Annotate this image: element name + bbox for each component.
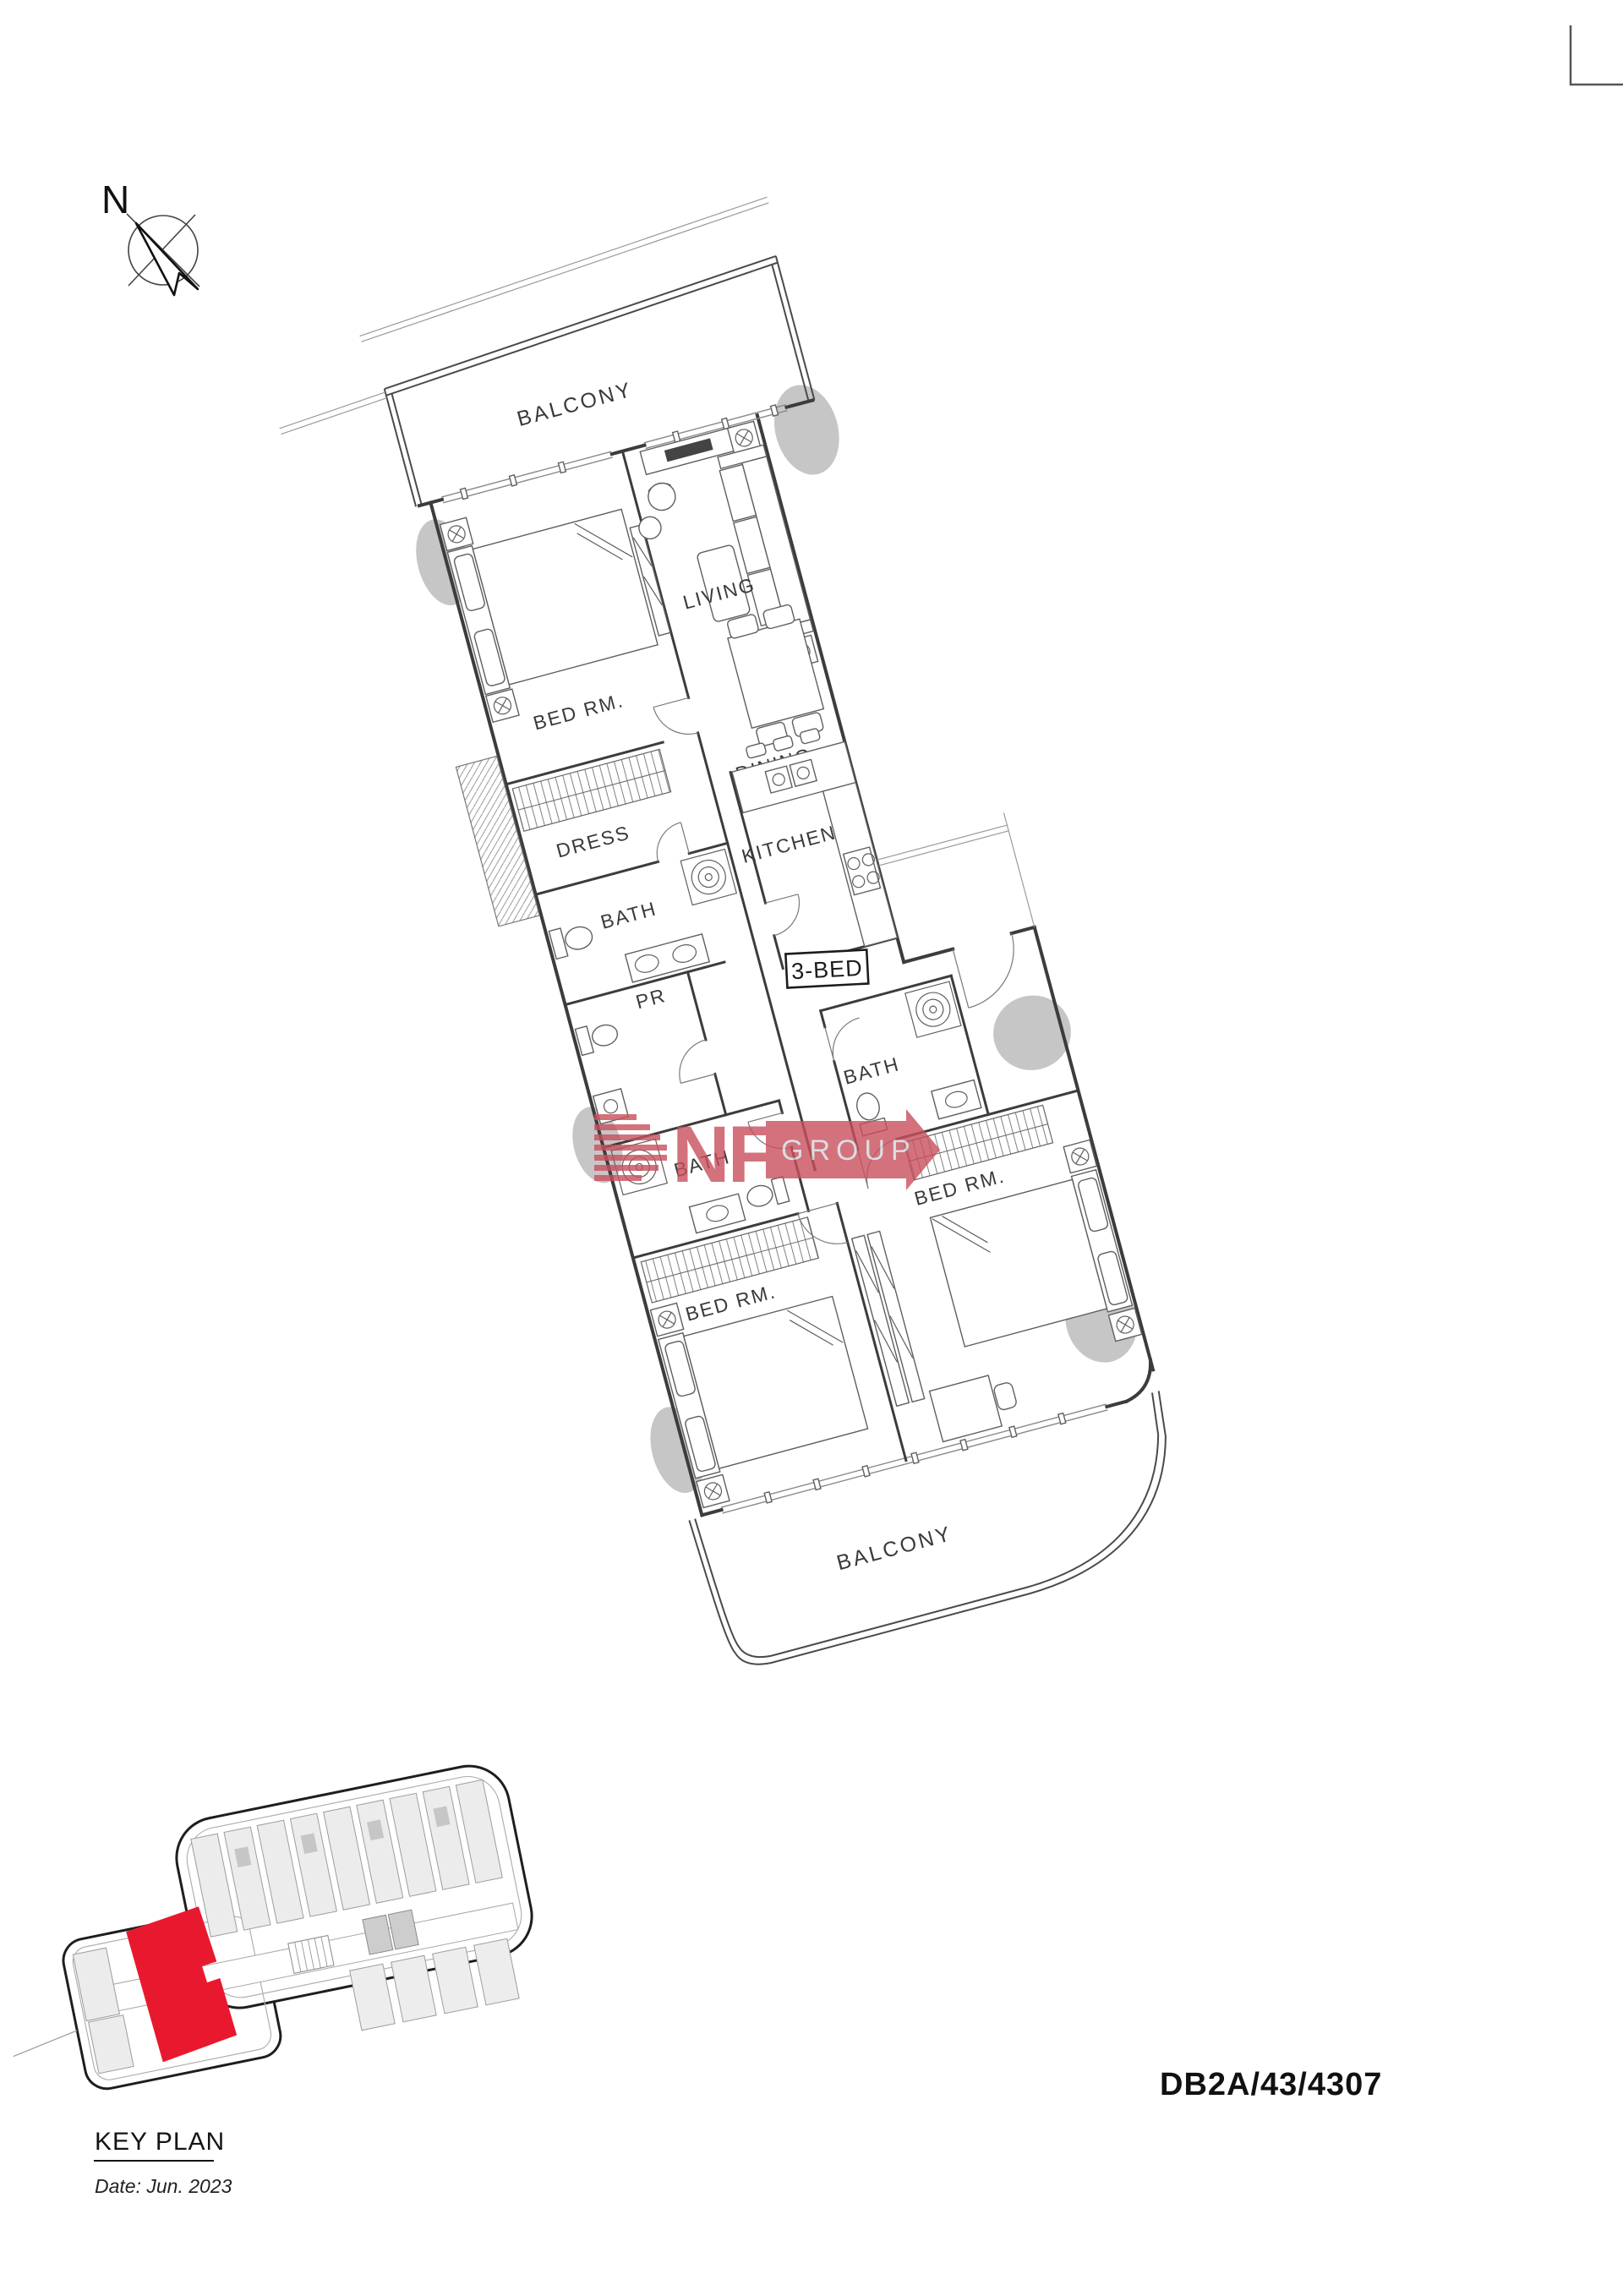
key-plan-title: KEY PLAN xyxy=(95,2128,225,2156)
blueprint-canvas: N BALCONY xyxy=(0,0,1623,2296)
room-label-bath-master: BATH xyxy=(598,897,659,933)
powder-room: PR xyxy=(570,984,694,1124)
bed-master: BED RM. xyxy=(440,474,687,744)
unit-type-tag: 3-BED xyxy=(785,950,868,988)
logo-banner-text: GROUP xyxy=(781,1134,916,1167)
key-plan-map xyxy=(0,1759,549,2107)
unit-type-label: 3-BED xyxy=(790,955,863,984)
room-label-bed-master: BED RM. xyxy=(531,689,626,735)
kitchen: KITCHEN xyxy=(715,722,898,970)
room-label-dress: DRESS xyxy=(554,821,632,861)
room-label-kitchen: KITCHEN xyxy=(740,821,839,867)
date-note: Date: Jun. 2023 xyxy=(95,2175,232,2197)
room-label-bath-right: BATH xyxy=(841,1052,902,1089)
bath-master: BATH xyxy=(540,849,751,999)
floor-plan-sheet: N BALCONY xyxy=(0,0,1623,2296)
sheet-corner-mark xyxy=(1571,25,1623,85)
room-label-powder-room: PR xyxy=(633,984,668,1013)
reference-number: DB2A/43/4307 xyxy=(1160,2067,1382,2102)
unit-plan: BALCONY xyxy=(254,177,1210,1703)
dress-room: DRESS xyxy=(554,821,632,861)
logo-letters: NF xyxy=(672,1110,774,1200)
room-label-balcony-top: BALCONY xyxy=(515,378,636,431)
compass: N xyxy=(101,178,199,295)
watermark-logo: NF GROUP xyxy=(594,1109,940,1200)
room-label-balcony-bottom: BALCONY xyxy=(834,1522,955,1575)
north-label: N xyxy=(101,178,129,221)
